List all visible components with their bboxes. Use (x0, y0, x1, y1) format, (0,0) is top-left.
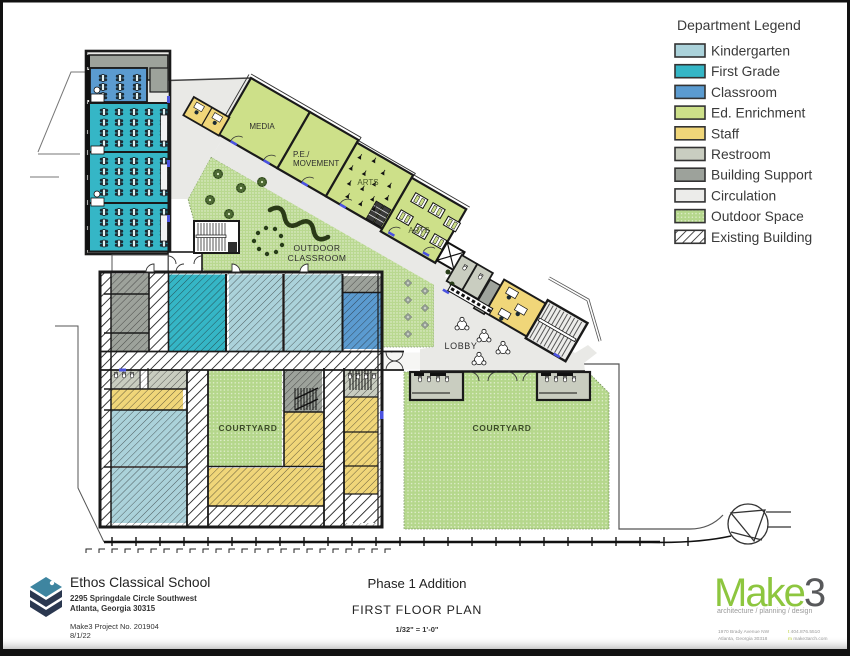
svg-text:P.E./: P.E./ (293, 150, 310, 159)
svg-text:FIRST FLOOR PLAN: FIRST FLOOR PLAN (352, 603, 482, 617)
svg-text:Phase 1 Addition: Phase 1 Addition (368, 576, 467, 591)
svg-text:COURTYARD: COURTYARD (219, 423, 278, 433)
svg-text:COURTYARD: COURTYARD (473, 423, 532, 433)
svg-text:Building Support: Building Support (711, 168, 812, 183)
svg-text:MEDIA: MEDIA (249, 122, 275, 131)
svg-text:MOVEMENT: MOVEMENT (293, 159, 339, 168)
svg-text:Ed. Enrichment: Ed. Enrichment (711, 106, 805, 121)
svg-text:1/32" = 1'-0": 1/32" = 1'-0" (396, 625, 439, 634)
svg-text:Restroom: Restroom (711, 147, 771, 162)
svg-text:Staff: Staff (711, 126, 739, 141)
svg-text:2295 Springdale Circle Southwe: 2295 Springdale Circle Southwest (70, 594, 197, 603)
svg-text:Circulation: Circulation (711, 188, 776, 203)
svg-text:t 404.876.5510: t 404.876.5510 (788, 629, 820, 635)
svg-text:CLASSROOM: CLASSROOM (288, 253, 347, 263)
svg-text:Kindergarten: Kindergarten (711, 44, 790, 59)
svg-text:Make3 Project No. 201904: Make3 Project No. 201904 (70, 622, 159, 631)
svg-text:ARTS: ARTS (408, 226, 429, 235)
svg-text:Atlanta, Georgia 30315: Atlanta, Georgia 30315 (70, 604, 156, 613)
svg-text:8/1/22: 8/1/22 (70, 631, 91, 640)
svg-text:First Grade: First Grade (711, 64, 780, 79)
svg-text:architecture / planning / desi: architecture / planning / design (717, 608, 812, 615)
svg-text:ARTS: ARTS (357, 178, 378, 187)
svg-text:Atlanta, Georgia 30318: Atlanta, Georgia 30318 (718, 636, 768, 642)
svg-text:OUTDOOR: OUTDOOR (294, 243, 341, 253)
svg-text:m make3arch.com: m make3arch.com (788, 636, 827, 642)
svg-text:1970 Brady Avenue NW: 1970 Brady Avenue NW (718, 629, 770, 635)
svg-text:Outdoor Space: Outdoor Space (711, 209, 804, 224)
svg-text:Ethos Classical School: Ethos Classical School (70, 575, 210, 590)
svg-text:Classroom: Classroom (711, 85, 777, 100)
svg-text:LOBBY: LOBBY (444, 341, 477, 351)
svg-text:Existing Building: Existing Building (711, 230, 812, 245)
svg-text:Department Legend: Department Legend (677, 17, 801, 33)
